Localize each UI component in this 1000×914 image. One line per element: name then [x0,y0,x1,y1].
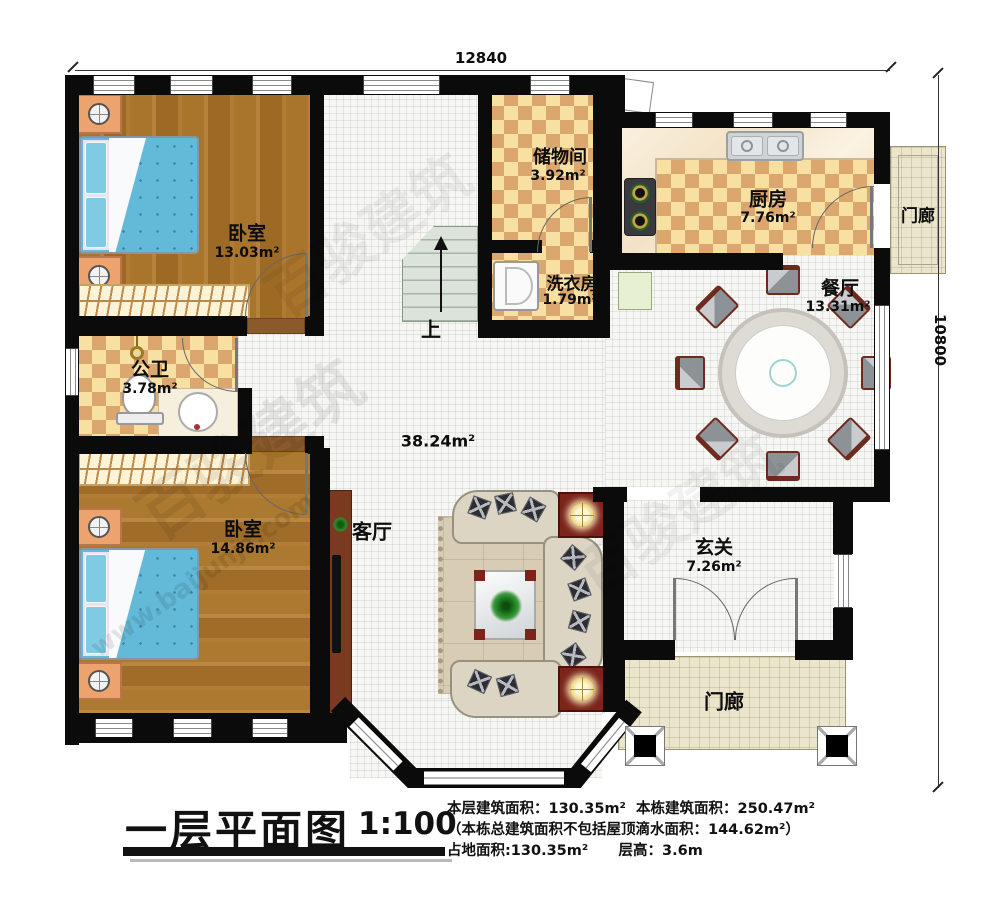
stairs-up-label: 上 [421,314,441,343]
room-area-dining: 13.31m² [805,299,870,315]
bed [79,136,199,254]
window [170,76,213,94]
plan-scale: 1:100 [358,806,457,842]
room-label-bedroom1: 卧室 [228,219,266,246]
room-label-laundry: 洗衣房 [547,270,598,295]
lazy-susan [769,359,797,387]
dining-chair [675,356,705,390]
pillow [85,554,107,603]
column-core [634,735,656,757]
bed [79,548,199,660]
nightstand [76,94,122,134]
nightstand [76,508,122,546]
title-info-block: 本层建筑面积：130.35m² 本栋建筑面积：250.47m² （本栋总建筑面积… [447,799,867,862]
room-area-storage: 3.92m² [530,168,585,184]
room-area-living: 38.24m² [401,432,475,451]
info-footprint: 占地面积:130.35m² [447,843,588,859]
window [733,113,773,127]
wall-segment [490,240,542,253]
sink-basin [767,136,799,156]
drain-icon [777,140,789,152]
title-underline [123,847,445,856]
room-label-porch-bottom: 门廊 [704,686,744,715]
info-line1: 本层建筑面积：130.35m² 本栋建筑面积：250.47m² [447,799,867,820]
room-label-porch-right: 门廊 [901,202,935,227]
room-area-laundry: 1.79m² [542,292,597,308]
dimension-right-label: 10800 [931,314,949,366]
room-area-bedroom2: 14.86m² [210,541,275,557]
refrigerator [618,272,652,310]
door-leaf [870,186,873,248]
wardrobe [78,284,250,318]
table-corner [474,629,485,640]
room-area-bedroom1: 13.03m² [214,245,279,261]
kitchen-back-door-leaf [620,78,654,114]
room-area-bathroom: 3.78m² [122,381,177,397]
pillow [85,142,107,194]
dimension-line-right [938,75,939,788]
cushion [494,492,517,515]
dimension-tick [885,61,896,72]
lamp-icon [88,670,110,692]
burner-icon [630,211,650,231]
wall-segment [310,75,324,320]
info-line3: 占地面积:130.35m² 层高：3.6m [447,841,867,862]
window [875,305,889,450]
info-floor-height: 层高：3.6m [619,843,703,859]
window [173,719,212,737]
pillow [85,606,107,655]
window [252,76,292,94]
porch-column [625,726,665,766]
dining-chair [766,451,800,481]
kitchen-sink [726,131,804,161]
wall-segment [833,502,853,554]
pillow [85,197,107,249]
window [810,113,847,127]
tv [332,555,341,653]
window [95,719,133,737]
door-leaf [305,453,308,515]
plant-icon [333,517,348,532]
wall-segment [593,92,622,253]
room-area-kitchen: 7.76m² [740,210,795,226]
wall-segment [603,487,624,642]
info-floor-area: 本层建筑面积：130.35m² [447,801,626,817]
room-label-foyer: 玄关 [695,533,733,560]
plant-icon [489,589,523,623]
wall-segment [305,316,324,336]
bed-sheet [109,138,149,252]
info-line2: （本栋总建筑面积不包括屋顶滴水面积：144.62m²） [447,820,867,841]
pillows [83,552,109,656]
stairs-arrow-line [440,248,442,312]
tv-cabinet [328,490,352,716]
wall-segment [610,253,783,270]
faucet-icon [194,424,200,430]
wall-segment [310,448,330,716]
room-label-kitchen: 厨房 [749,185,787,212]
stairs-arrow-head-icon [434,236,448,250]
drain-icon [741,140,753,152]
dining-table [718,308,848,438]
door-leaf [673,578,676,640]
window [252,719,288,737]
sink-basin [731,136,763,156]
wall-segment [700,487,890,502]
info-building-area: 本栋建筑面积：250.47m² [636,801,815,817]
burner-icon [630,183,650,203]
porch-column [817,726,857,766]
door-leaf [305,253,308,317]
toilet-tank [116,412,164,425]
room-area-foyer: 7.26m² [686,559,741,575]
washing-machine [493,261,539,311]
door-leaf [235,338,238,392]
window [66,348,78,396]
table-corner [474,570,485,581]
pillows [83,140,109,250]
lamp-icon [88,516,110,538]
dimension-line-top [75,70,890,71]
window [655,113,693,127]
window [93,76,135,94]
door-threshold [247,318,305,334]
room-label-dining: 餐厅 [821,274,859,301]
window [363,76,440,94]
door-leaf [589,197,592,252]
room-label-bedroom2: 卧室 [224,515,262,542]
nightstand [76,662,122,700]
window [834,554,852,608]
floor-plan: 上 [0,0,1000,914]
room-label-living: 客厅 [352,516,392,545]
table-corner [525,629,536,640]
lamp-icon [88,103,110,125]
wall-segment [478,92,492,336]
column-core [826,735,848,757]
bay-window [320,690,660,800]
washer-door [505,267,533,305]
wall-segment [65,436,247,454]
door-leaf [795,578,798,640]
dimension-top-label: 12840 [455,49,507,67]
door-threshold [247,436,305,452]
room-label-bathroom: 公卫 [131,355,169,382]
coffee-table [474,570,536,640]
lamp-icon [570,503,594,527]
window [530,76,570,94]
wardrobe [78,452,250,486]
wall-segment [833,608,853,660]
wall-segment [478,320,610,338]
wall-segment [65,316,247,336]
table-corner [525,570,536,581]
bed-sheet [109,550,149,658]
room-label-storage: 储物间 [533,143,587,169]
wall-segment [874,112,890,184]
title-underline-shadow [130,859,452,862]
wall-segment [65,75,79,745]
stove [624,178,656,236]
